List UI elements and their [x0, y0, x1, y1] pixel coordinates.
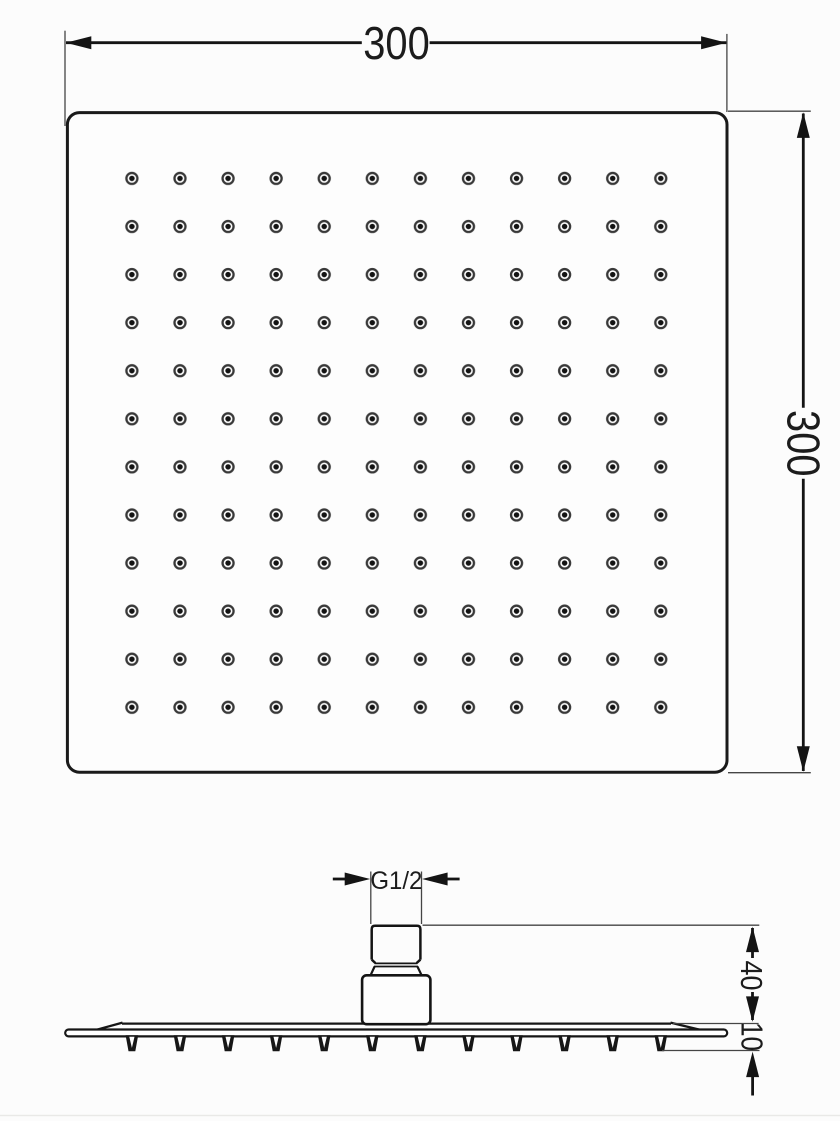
- svg-text:10: 10: [735, 1022, 770, 1051]
- svg-text:300: 300: [363, 17, 430, 69]
- svg-text:40: 40: [734, 961, 769, 991]
- svg-text:G1/2: G1/2: [370, 867, 422, 895]
- svg-text:300: 300: [778, 410, 830, 477]
